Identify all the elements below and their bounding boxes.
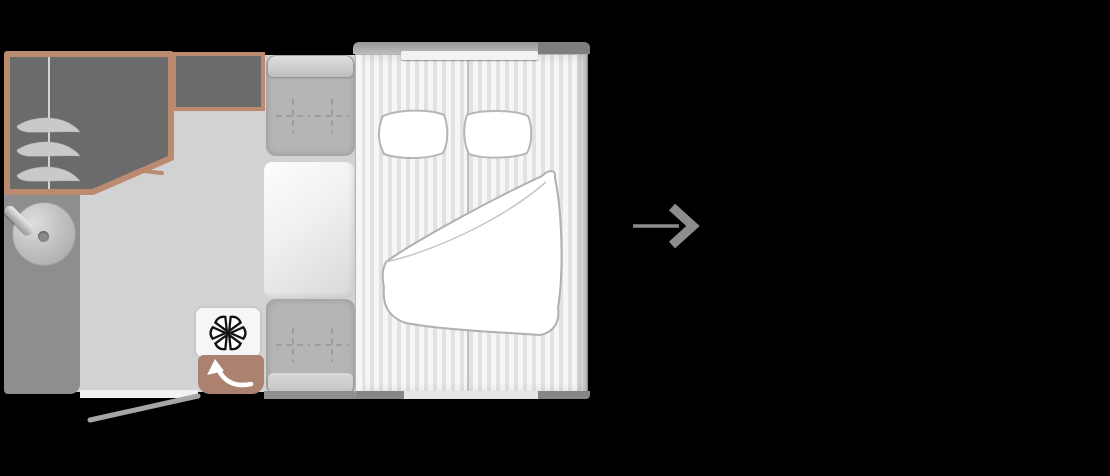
dinette-table xyxy=(264,162,354,298)
arrow-right-icon[interactable] xyxy=(627,197,705,255)
bed-head-wall-corner xyxy=(538,42,590,54)
headrest xyxy=(268,56,353,77)
dinette-rear-seat xyxy=(266,299,355,395)
bed-foot-panel xyxy=(404,391,538,399)
open-door-line xyxy=(78,390,208,428)
scene xyxy=(0,0,1110,476)
bed-head-shelf xyxy=(401,51,538,60)
pillow-left xyxy=(379,111,447,158)
door-swing-arrow-icon xyxy=(198,355,264,394)
dinette-front-seat xyxy=(266,55,355,156)
pillows xyxy=(370,106,540,166)
heater xyxy=(194,306,262,359)
entry-door xyxy=(198,355,264,394)
bed-foot-wall xyxy=(356,391,404,399)
bed-frame-right xyxy=(577,55,588,392)
bed-foot-wall xyxy=(538,391,590,399)
pillow-right xyxy=(464,111,531,158)
overhead-cabinet xyxy=(172,52,265,111)
fan-icon xyxy=(206,311,250,355)
bed-frame-left xyxy=(356,55,363,392)
duvet xyxy=(370,160,570,355)
round-sink xyxy=(12,202,76,266)
wall-segment xyxy=(264,391,360,399)
wardrobe xyxy=(3,50,177,198)
